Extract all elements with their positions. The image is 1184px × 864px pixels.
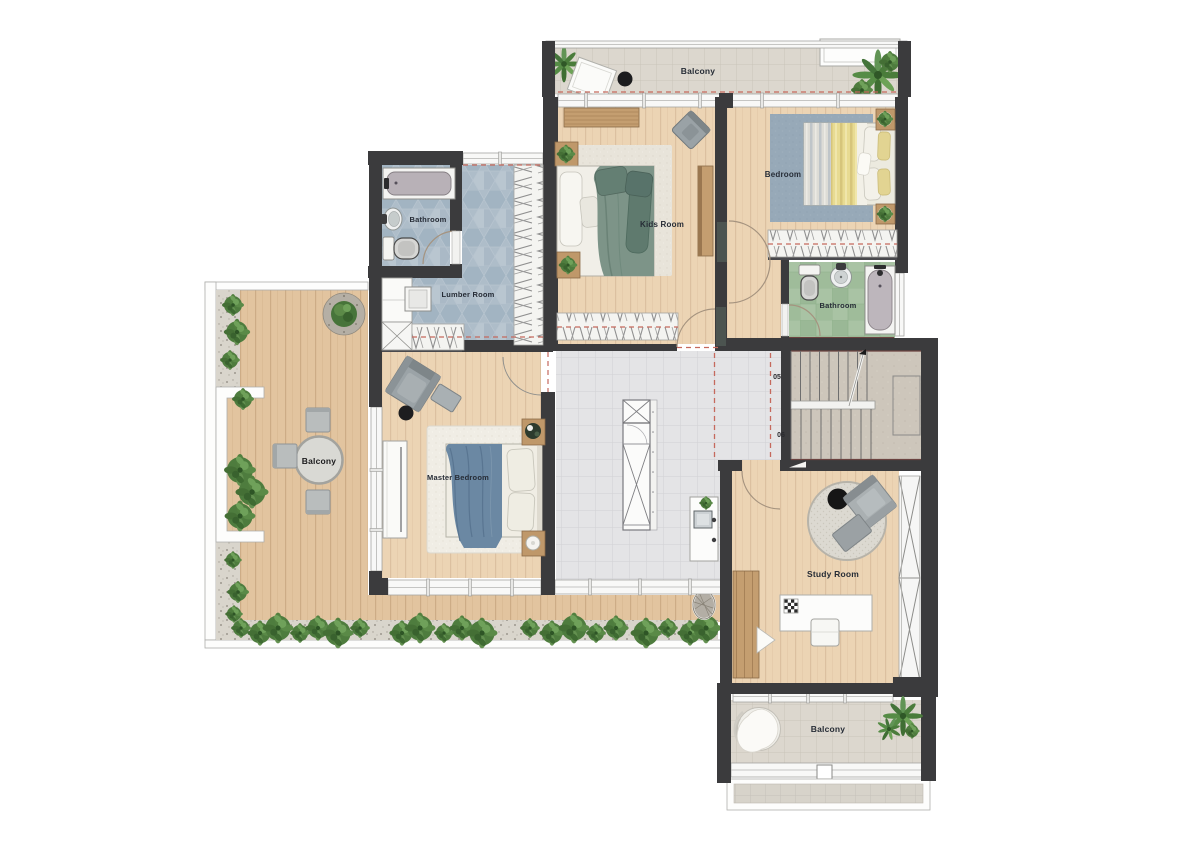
- svg-text:06: 06: [777, 432, 785, 439]
- svg-text:Bedroom: Bedroom: [765, 170, 802, 179]
- svg-text:Master Bedroom: Master Bedroom: [427, 473, 489, 482]
- svg-text:Study Room: Study Room: [807, 569, 859, 579]
- svg-text:Balcony: Balcony: [681, 66, 716, 76]
- svg-text:Bathroom: Bathroom: [819, 301, 856, 310]
- svg-text:Balcony: Balcony: [302, 456, 337, 466]
- svg-text:Lumber Room: Lumber Room: [441, 290, 494, 299]
- svg-text:Balcony: Balcony: [811, 724, 846, 734]
- svg-text:Bathroom: Bathroom: [409, 215, 446, 224]
- svg-text:Kids Room: Kids Room: [640, 220, 684, 229]
- svg-text:05: 05: [773, 374, 781, 381]
